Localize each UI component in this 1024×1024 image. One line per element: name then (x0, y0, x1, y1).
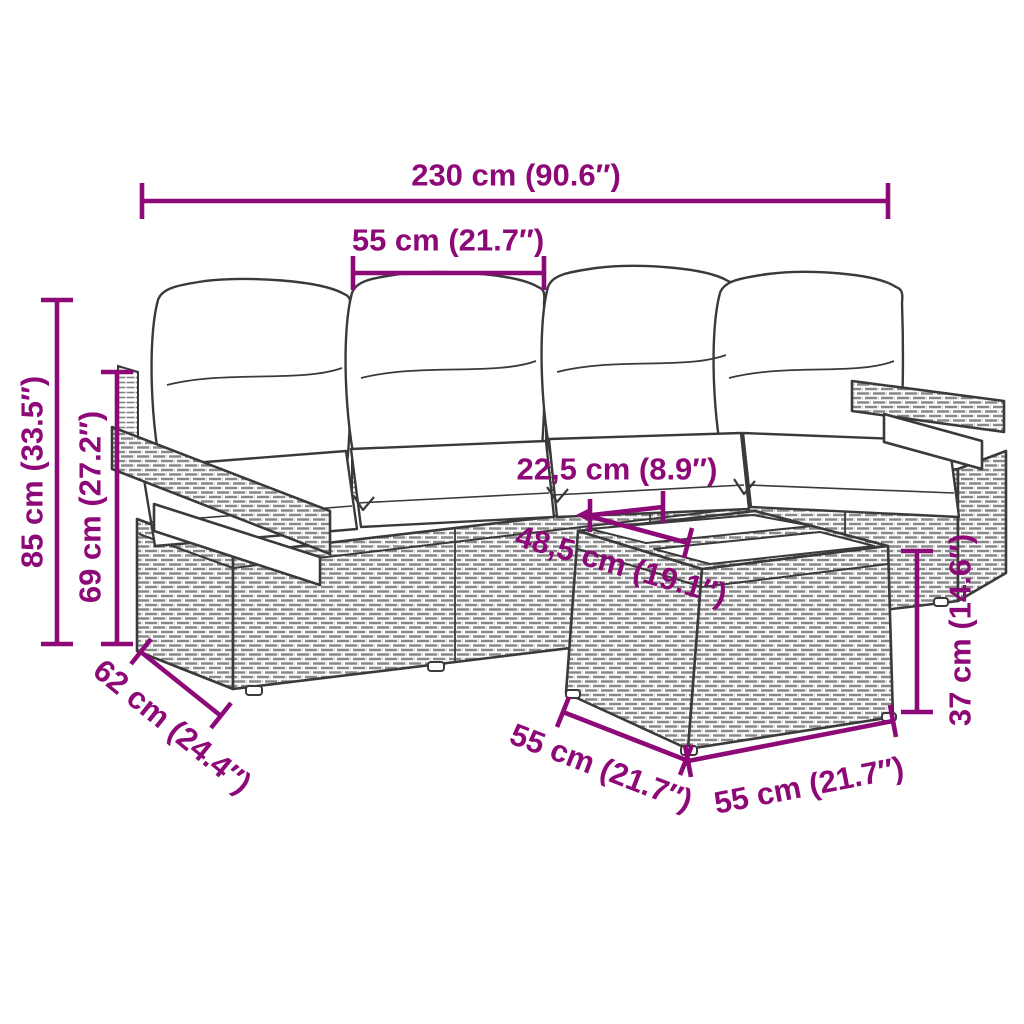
seat-cushion-3 (549, 433, 749, 517)
seat-cushion-2 (351, 441, 554, 527)
furniture-illustration (0, 0, 1024, 1024)
side-table (566, 511, 896, 755)
product-dimension-diagram: 230 cm (90.6″) 55 cm (21.7″) 85 cm (33.5… (0, 0, 1024, 1024)
dim-line-overall-width (142, 183, 888, 219)
dim-line-overall-height (41, 300, 73, 644)
sofa-base-right-face (958, 451, 1006, 601)
table-front-left-face (566, 531, 702, 749)
